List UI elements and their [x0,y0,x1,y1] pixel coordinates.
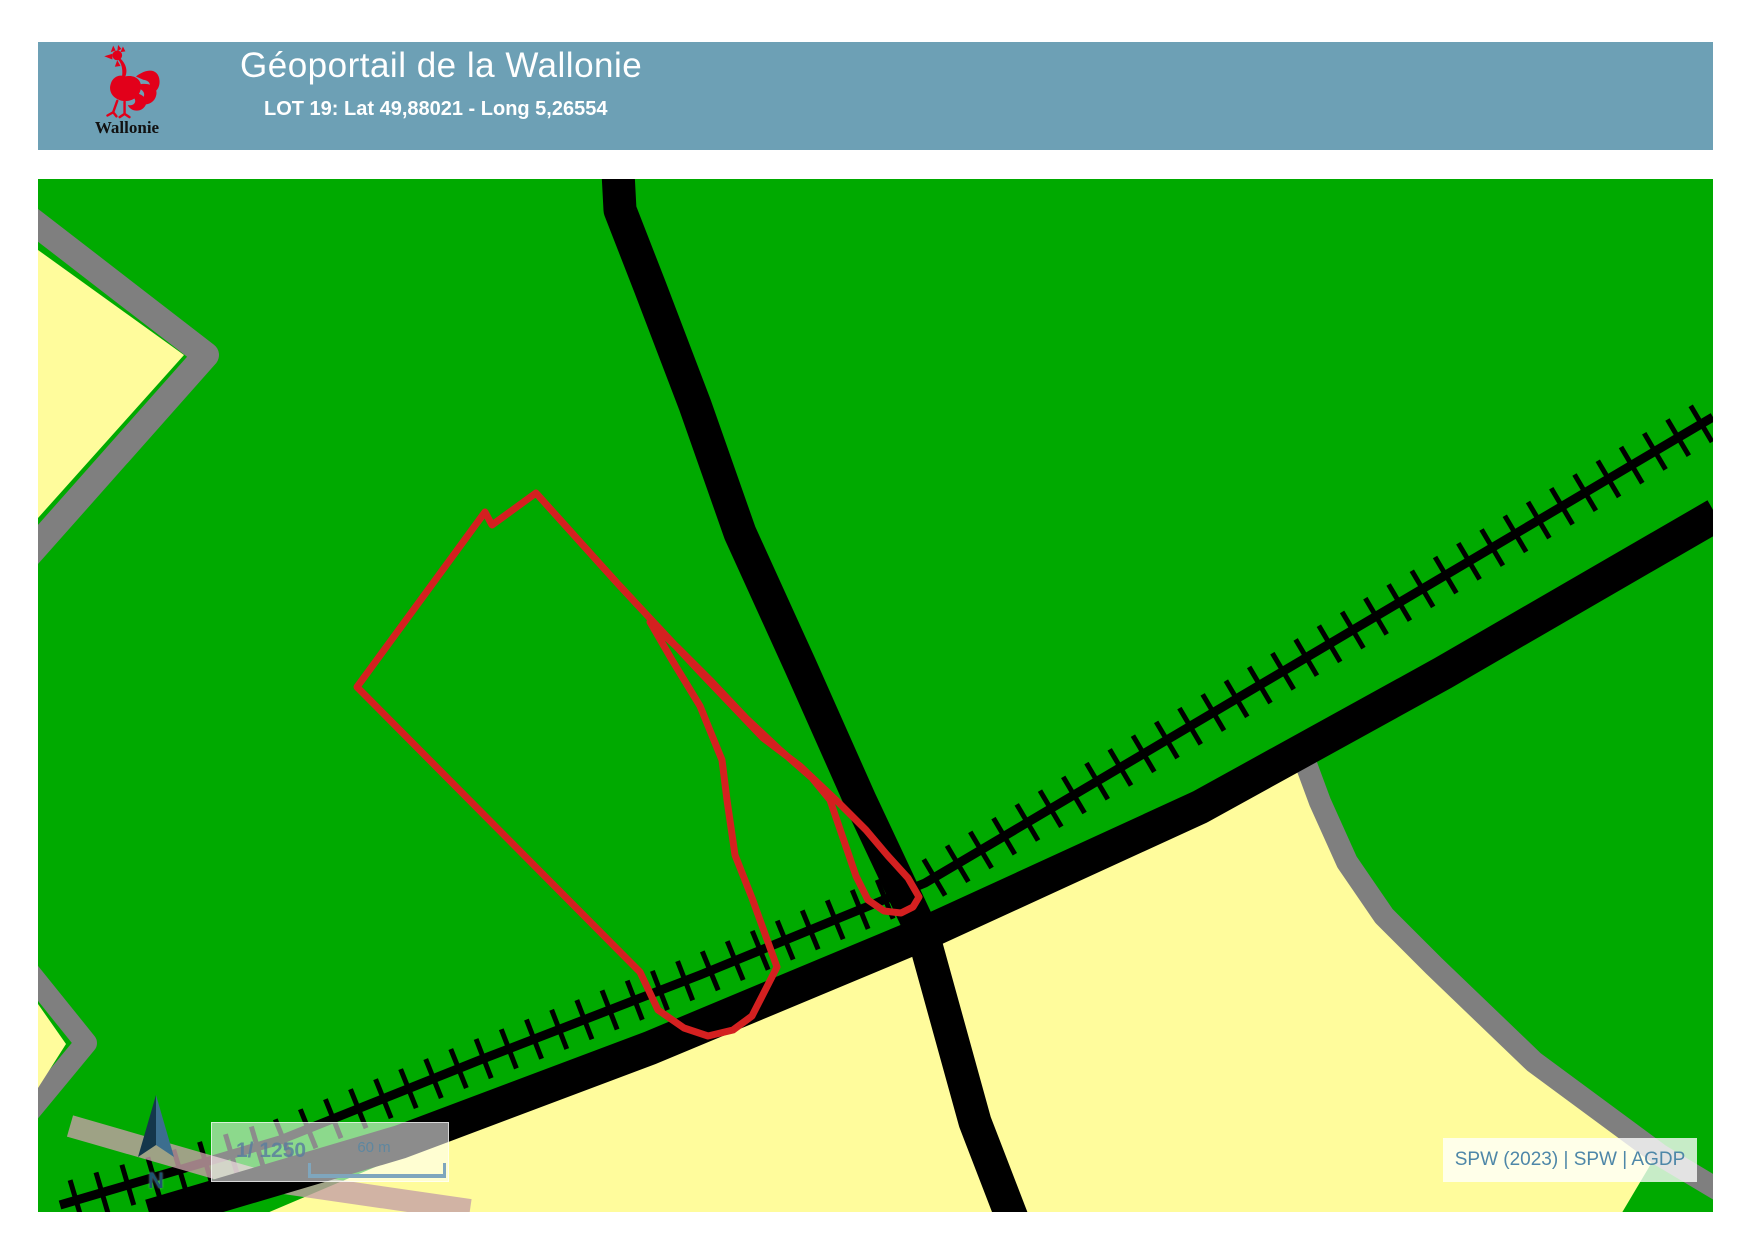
scale-widget: 1/ 1250 60 m [211,1122,449,1182]
north-arrow: N [116,1091,196,1191]
scale-bar-label: 60 m [308,1139,440,1156]
scale-ratio-text: 1/ 1250 [236,1139,306,1163]
map-attribution: SPW (2023) | SPW | AGDP [1443,1138,1697,1182]
wallonie-logo: Wallonie [62,44,192,148]
scale-bar [308,1163,446,1178]
logo-wordmark: Wallonie [62,118,192,138]
north-arrow-icon [116,1091,196,1165]
lot-coordinates-subtitle: LOT 19: Lat 49,88021 - Long 5,26554 [264,98,607,121]
header-bar: Wallonie Géoportail de la Wallonie LOT 1… [38,42,1713,150]
map-layers [38,179,1713,1212]
page-title: Géoportail de la Wallonie [240,46,642,86]
map-canvas[interactable]: N 1/ 1250 60 m SPW (2023) | SPW | AGDP [38,179,1713,1212]
north-arrow-label: N [116,1168,196,1194]
rooster-icon [88,44,166,122]
